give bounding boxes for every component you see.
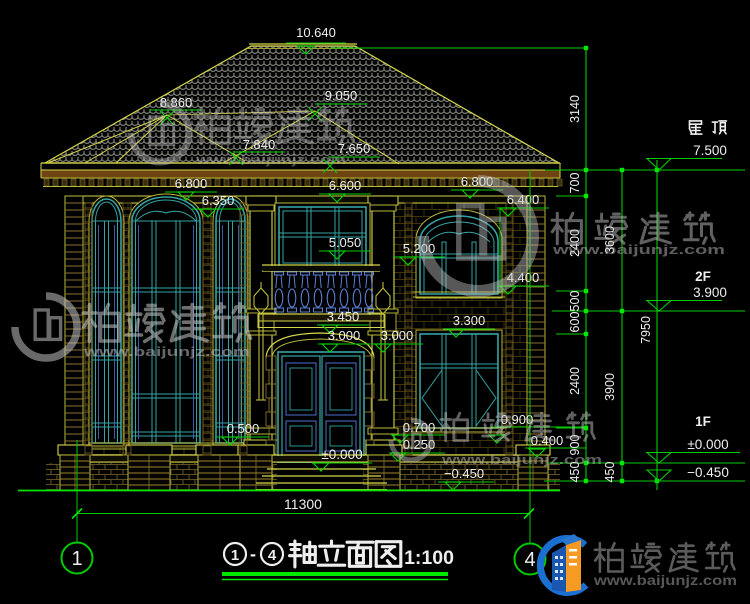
svg-text:6.800: 6.800	[175, 176, 208, 191]
svg-text:1: 1	[231, 547, 239, 564]
svg-text:10.640: 10.640	[296, 25, 336, 40]
svg-text:3.000: 3.000	[328, 328, 361, 343]
svg-text:1F: 1F	[695, 414, 711, 429]
svg-text:3140: 3140	[568, 95, 582, 123]
svg-text:3900: 3900	[603, 373, 617, 401]
svg-text:600: 600	[568, 312, 582, 333]
svg-text:www.baijunjz.com: www.baijunjz.com	[83, 344, 250, 359]
svg-text:7950: 7950	[639, 316, 653, 344]
svg-text:1: 1	[71, 548, 82, 570]
svg-text:−0.450: −0.450	[444, 466, 484, 481]
svg-text:0.400: 0.400	[531, 433, 564, 448]
svg-text:7.500: 7.500	[693, 143, 727, 158]
svg-text:6.600: 6.600	[329, 178, 362, 193]
svg-text:3.900: 3.900	[693, 285, 727, 300]
svg-text:11300: 11300	[284, 496, 322, 512]
svg-text:±0.000: ±0.000	[321, 447, 362, 462]
svg-text:www.baijunjz.com: www.baijunjz.com	[441, 452, 602, 467]
svg-text:0.500: 0.500	[227, 421, 260, 436]
svg-text:5.050: 5.050	[329, 235, 362, 250]
svg-text:3.300: 3.300	[453, 313, 486, 328]
svg-text:3.450: 3.450	[327, 309, 360, 324]
svg-text:www.baijunjz.com: www.baijunjz.com	[551, 242, 725, 257]
svg-text:3.000: 3.000	[381, 328, 414, 343]
svg-text:6.350: 6.350	[202, 193, 235, 208]
svg-text:450: 450	[603, 462, 617, 483]
svg-text:−0.450: −0.450	[687, 465, 729, 480]
svg-text:www.baijunjz.com: www.baijunjz.com	[195, 152, 346, 167]
svg-text:4: 4	[524, 549, 535, 571]
svg-text:2400: 2400	[568, 367, 582, 395]
svg-text:700: 700	[568, 173, 582, 194]
svg-text:4: 4	[268, 547, 277, 564]
svg-text:±0.000: ±0.000	[687, 437, 728, 452]
svg-text:500: 500	[568, 291, 582, 312]
svg-text:-: -	[250, 544, 256, 564]
svg-text:1:100: 1:100	[404, 547, 454, 569]
svg-text:9.050: 9.050	[325, 88, 358, 103]
svg-text:2F: 2F	[695, 269, 711, 284]
svg-text:www.baijunjz.com: www.baijunjz.com	[593, 573, 737, 588]
